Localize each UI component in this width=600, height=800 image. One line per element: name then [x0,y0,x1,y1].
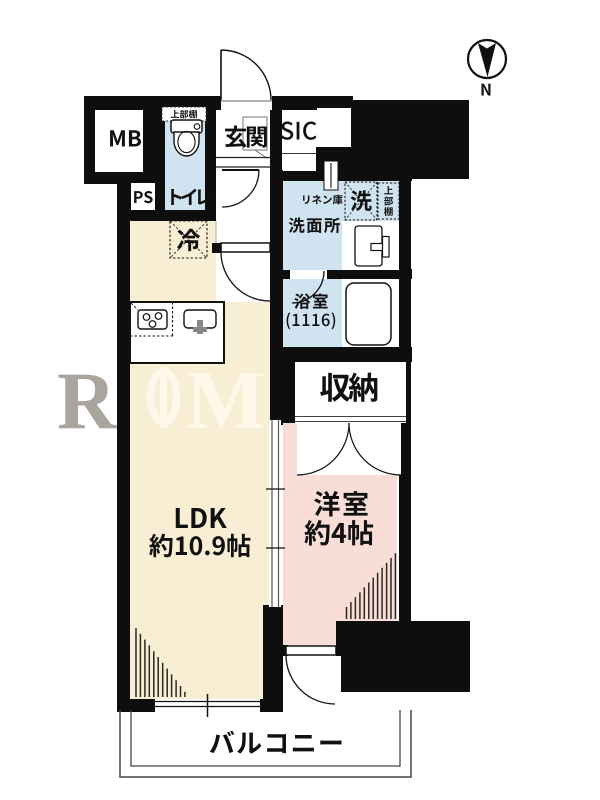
svg-text:R: R [57,355,117,446]
svg-text:M: M [186,354,265,447]
